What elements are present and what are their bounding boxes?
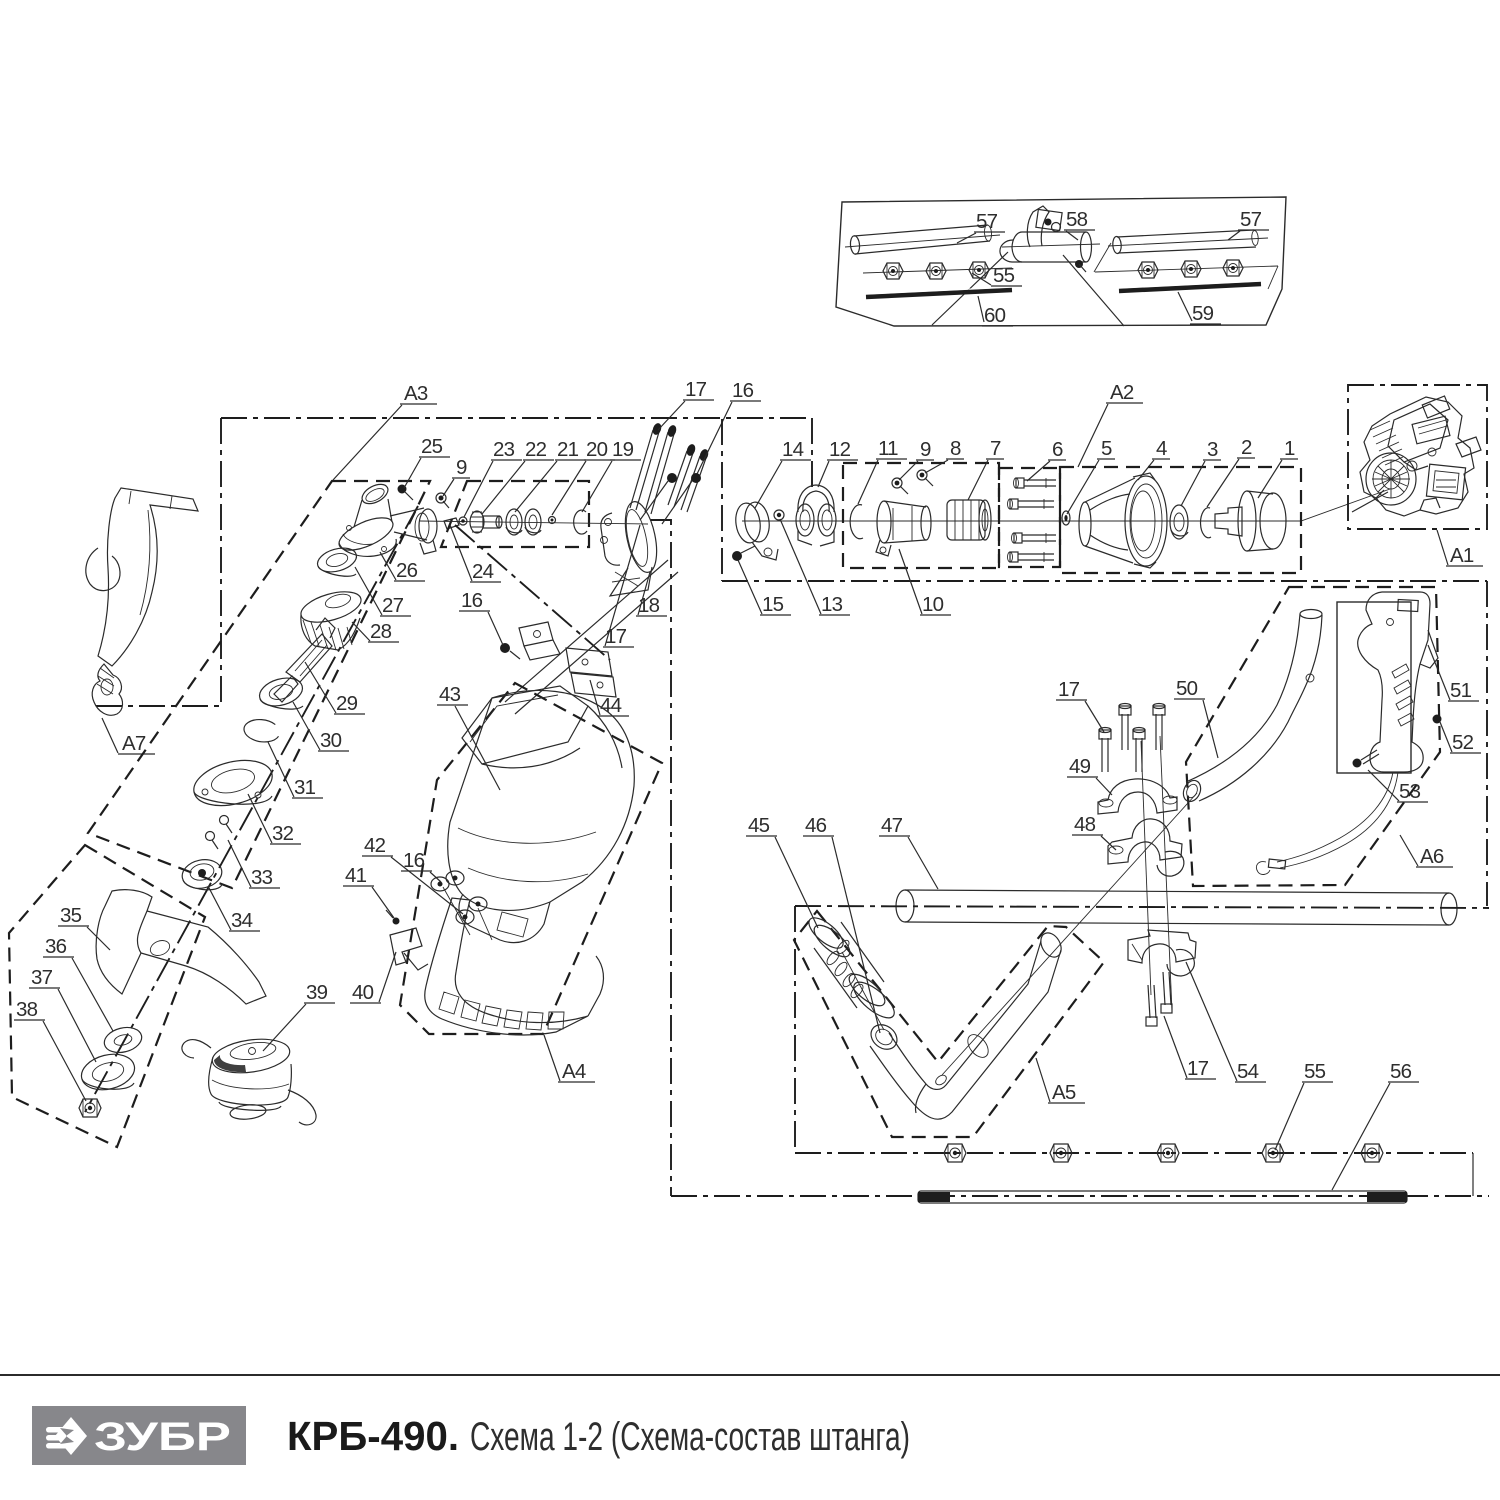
svg-text:38: 38 [16,998,38,1021]
svg-text:31: 31 [294,776,316,799]
svg-text:23: 23 [493,438,515,461]
svg-text:27: 27 [382,594,404,617]
svg-text:20: 20 [586,438,608,461]
svg-text:16: 16 [461,589,483,612]
svg-text:29: 29 [336,692,358,715]
svg-text:1: 1 [1284,437,1295,460]
svg-text:36: 36 [45,935,67,958]
svg-text:39: 39 [306,981,328,1004]
svg-text:56: 56 [1390,1060,1412,1083]
svg-text:19: 19 [612,438,634,461]
svg-text:28: 28 [370,620,392,643]
svg-text:58: 58 [1066,208,1088,231]
svg-text:53: 53 [1399,780,1421,803]
svg-text:A6: A6 [1420,845,1444,868]
svg-text:2: 2 [1241,436,1252,459]
svg-text:41: 41 [345,864,367,887]
svg-text:37: 37 [31,966,53,989]
svg-text:45: 45 [748,814,770,837]
svg-text:16: 16 [403,849,425,872]
svg-text:34: 34 [231,909,253,932]
svg-text:47: 47 [881,814,903,837]
svg-text:7: 7 [990,437,1001,460]
svg-text:55: 55 [993,264,1015,287]
svg-text:A2: A2 [1110,381,1134,404]
svg-text:35: 35 [60,904,82,927]
svg-text:26: 26 [396,559,418,582]
svg-text:55: 55 [1304,1060,1326,1083]
svg-text:17: 17 [685,378,707,401]
svg-text:A5: A5 [1052,1081,1076,1104]
svg-text:A3: A3 [404,382,428,405]
svg-text:52: 52 [1452,731,1474,754]
svg-text:16: 16 [732,379,754,402]
svg-text:21: 21 [557,438,579,461]
svg-text:32: 32 [272,822,294,845]
svg-text:33: 33 [251,866,273,889]
svg-text:40: 40 [352,981,374,1004]
svg-text:9: 9 [456,456,467,479]
svg-text:50: 50 [1176,677,1198,700]
svg-text:24: 24 [472,560,494,583]
svg-text:17: 17 [1058,678,1080,701]
svg-text:ЗУБР: ЗУБР [94,1415,231,1459]
svg-text:A7: A7 [122,732,146,755]
svg-text:57: 57 [1240,208,1262,231]
svg-text:59: 59 [1192,302,1214,325]
svg-text:22: 22 [525,438,547,461]
svg-text:49: 49 [1069,755,1091,778]
svg-text:46: 46 [805,814,827,837]
svg-text:8: 8 [950,437,961,460]
svg-text:4: 4 [1156,437,1167,460]
svg-text:12: 12 [829,438,851,461]
svg-text:5: 5 [1101,437,1112,460]
svg-text:54: 54 [1237,1060,1259,1083]
svg-text:10: 10 [922,593,944,616]
svg-text:43: 43 [439,683,461,706]
svg-text:17: 17 [1187,1057,1209,1080]
svg-text:42: 42 [364,834,386,857]
svg-text:25: 25 [421,435,443,458]
svg-text:A4: A4 [562,1060,586,1083]
svg-text:15: 15 [762,593,784,616]
svg-text:13: 13 [821,593,843,616]
svg-text:6: 6 [1052,438,1063,461]
svg-text:11: 11 [878,437,898,460]
svg-text:60: 60 [984,304,1006,327]
svg-text:48: 48 [1074,813,1096,836]
svg-text:A1: A1 [1450,544,1474,567]
svg-text:9: 9 [920,438,931,461]
svg-text:51: 51 [1450,679,1472,702]
svg-text:3: 3 [1207,438,1218,461]
svg-text:КРБ-490.: КРБ-490. [287,1413,459,1459]
svg-text:Схема 1-2 (Схема-состав штанга: Схема 1-2 (Схема-состав штанга) [470,1415,910,1459]
svg-text:30: 30 [320,729,342,752]
svg-text:14: 14 [782,438,804,461]
svg-text:44: 44 [600,694,622,717]
svg-text:57: 57 [976,210,998,233]
